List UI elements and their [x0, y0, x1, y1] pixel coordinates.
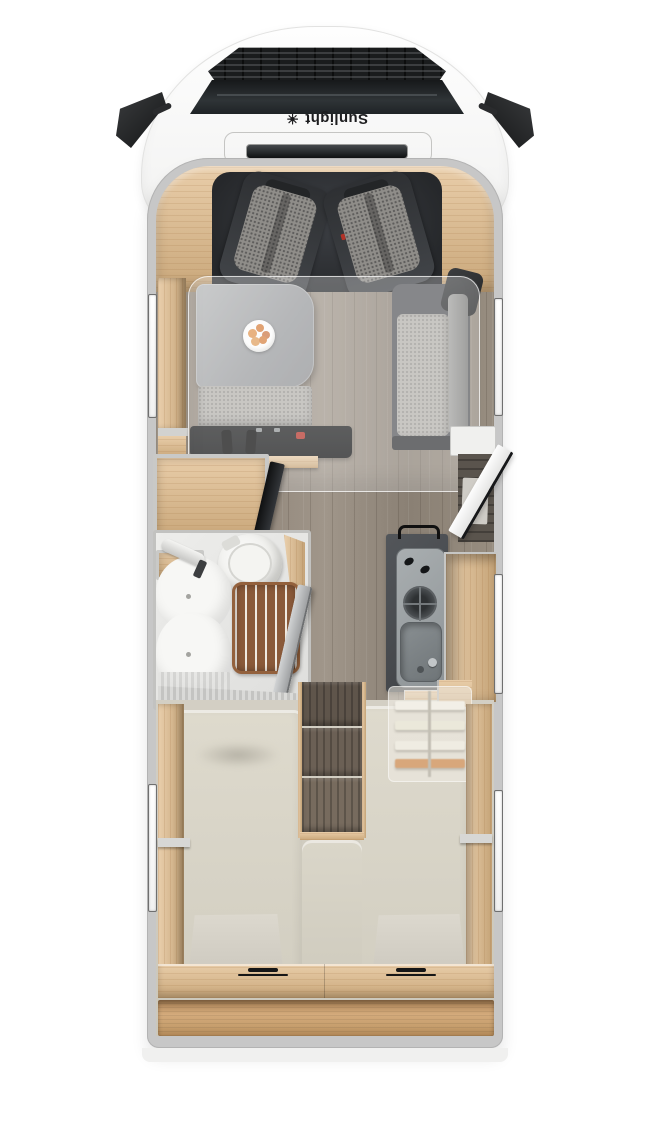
motorhome-floorplan: Sunlight ☀ [0, 0, 650, 1140]
left-bedroom-window [148, 784, 157, 912]
brand-label: Sunlight [305, 111, 368, 128]
cab-skylight [246, 144, 408, 159]
sink-drain [417, 666, 424, 673]
drain [186, 652, 191, 657]
sideboard-shelf [158, 428, 188, 436]
bed-step-1 [302, 682, 362, 726]
wardrobe-cabinet [153, 454, 269, 542]
right-living-window [494, 298, 503, 416]
entry-counter [450, 426, 496, 456]
gas-burner [403, 586, 437, 620]
clothes-shelf-ghost [388, 686, 472, 782]
rear-bumper-strip [142, 1048, 508, 1062]
storage-hatch-handle [248, 968, 278, 972]
right-rail-shelf [460, 834, 492, 843]
kitchen-faucet [428, 658, 437, 667]
right-bed-rail [466, 704, 492, 996]
kitchen-sink [400, 622, 442, 682]
sun-logo-icon: ☀ [286, 112, 299, 126]
bed-step-3 [302, 778, 362, 832]
kitchen-rail-handle [398, 525, 440, 539]
dinette-sideboard [158, 278, 186, 430]
brand-logo: Sunlight ☀ [210, 106, 444, 132]
headboard-shelf [158, 964, 494, 998]
bed-step-2 [302, 728, 362, 776]
drain [186, 594, 191, 599]
step-trim [298, 682, 302, 838]
step-trim [362, 682, 366, 838]
shelf-seam [324, 964, 325, 998]
left-living-window [148, 294, 157, 418]
rear-wood-panel [158, 1000, 494, 1036]
blanket-shadow [196, 742, 280, 768]
left-rail-shelf [158, 838, 190, 847]
right-kitchen-window [494, 574, 503, 694]
storage-hatch-handle [396, 968, 426, 972]
step-base-trim [300, 832, 364, 840]
right-bedroom-window [494, 790, 503, 912]
left-bed-rail [158, 704, 184, 996]
